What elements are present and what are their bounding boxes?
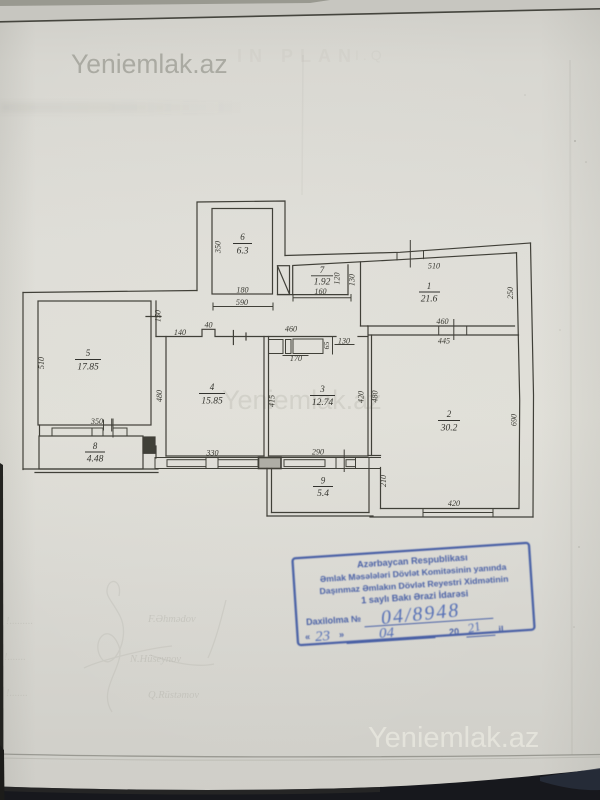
svg-text:8: 8 [93,441,98,451]
svg-text:160: 160 [314,287,326,296]
svg-text:170: 170 [290,354,302,363]
svg-text:350: 350 [90,417,103,426]
svg-text:1.92: 1.92 [314,278,331,288]
svg-text:15.85: 15.85 [201,397,223,407]
svg-text:F.Əhmədov: F.Əhmədov [147,614,196,625]
svg-text:330: 330 [205,449,218,458]
svg-text:30.2: 30.2 [440,424,458,434]
svg-text:40: 40 [204,321,212,330]
svg-text:2: 2 [447,409,452,419]
svg-text:445: 445 [438,337,450,346]
svg-text:»: » [339,629,345,639]
svg-text:130: 130 [338,337,350,346]
svg-text:480: 480 [371,390,380,402]
svg-text:65: 65 [322,342,331,350]
svg-text:1: 1 [427,281,432,291]
svg-text:460: 460 [285,325,297,334]
svg-text:6.3: 6.3 [237,247,249,257]
svg-text:690: 690 [510,414,519,426]
svg-text:4.48: 4.48 [87,455,104,465]
svg-text:Yeniemlak.az: Yeniemlak.az [368,722,539,754]
svg-text:130: 130 [348,274,357,286]
svg-text:20: 20 [449,627,460,638]
svg-text:9: 9 [321,476,326,486]
svg-text:350: 350 [214,241,223,254]
svg-text:Q.Rüstəmov: Q.Rüstəmov [148,690,199,701]
svg-text:5: 5 [86,348,91,358]
svg-text:250: 250 [506,287,515,299]
svg-text:420: 420 [448,499,460,508]
svg-text:IN PLAN: IN PLAN [237,46,358,66]
svg-text:3: 3 [319,384,325,394]
svg-text:6: 6 [240,232,245,242]
svg-text:«: « [305,631,311,641]
svg-text:590: 590 [236,298,248,307]
svg-text:150: 150 [154,310,163,322]
svg-text:415: 415 [268,395,277,407]
svg-text:510: 510 [428,262,440,271]
svg-text:140: 140 [174,328,186,337]
svg-text:4: 4 [210,382,215,392]
svg-text:N.Hüseynov: N.Hüseynov [129,654,181,665]
svg-text:460: 460 [436,317,448,326]
svg-text:il: il [498,624,504,634]
svg-text:Yeniemlak.az: Yeniemlak.az [71,49,228,79]
svg-text:!.......: !....... [4,652,26,663]
svg-text:180: 180 [236,286,248,295]
svg-text:12.74: 12.74 [312,398,334,408]
svg-text:!.........: !......... [6,616,33,627]
svg-text:420: 420 [357,391,366,403]
svg-text:!.......: !....... [6,688,28,699]
svg-text:21.6: 21.6 [421,295,438,305]
svg-text:7: 7 [320,265,325,275]
svg-text:5.4: 5.4 [317,489,329,499]
svg-text:290: 290 [312,448,324,457]
svg-text:480: 480 [155,390,164,402]
svg-text:120: 120 [333,272,342,284]
svg-text:17.85: 17.85 [77,363,99,373]
svg-text:04: 04 [379,625,396,642]
svg-text:510: 510 [37,357,46,369]
svg-text:23: 23 [315,628,331,645]
svg-text:I.Q: I.Q [355,47,386,63]
svg-text:210: 210 [379,475,388,487]
